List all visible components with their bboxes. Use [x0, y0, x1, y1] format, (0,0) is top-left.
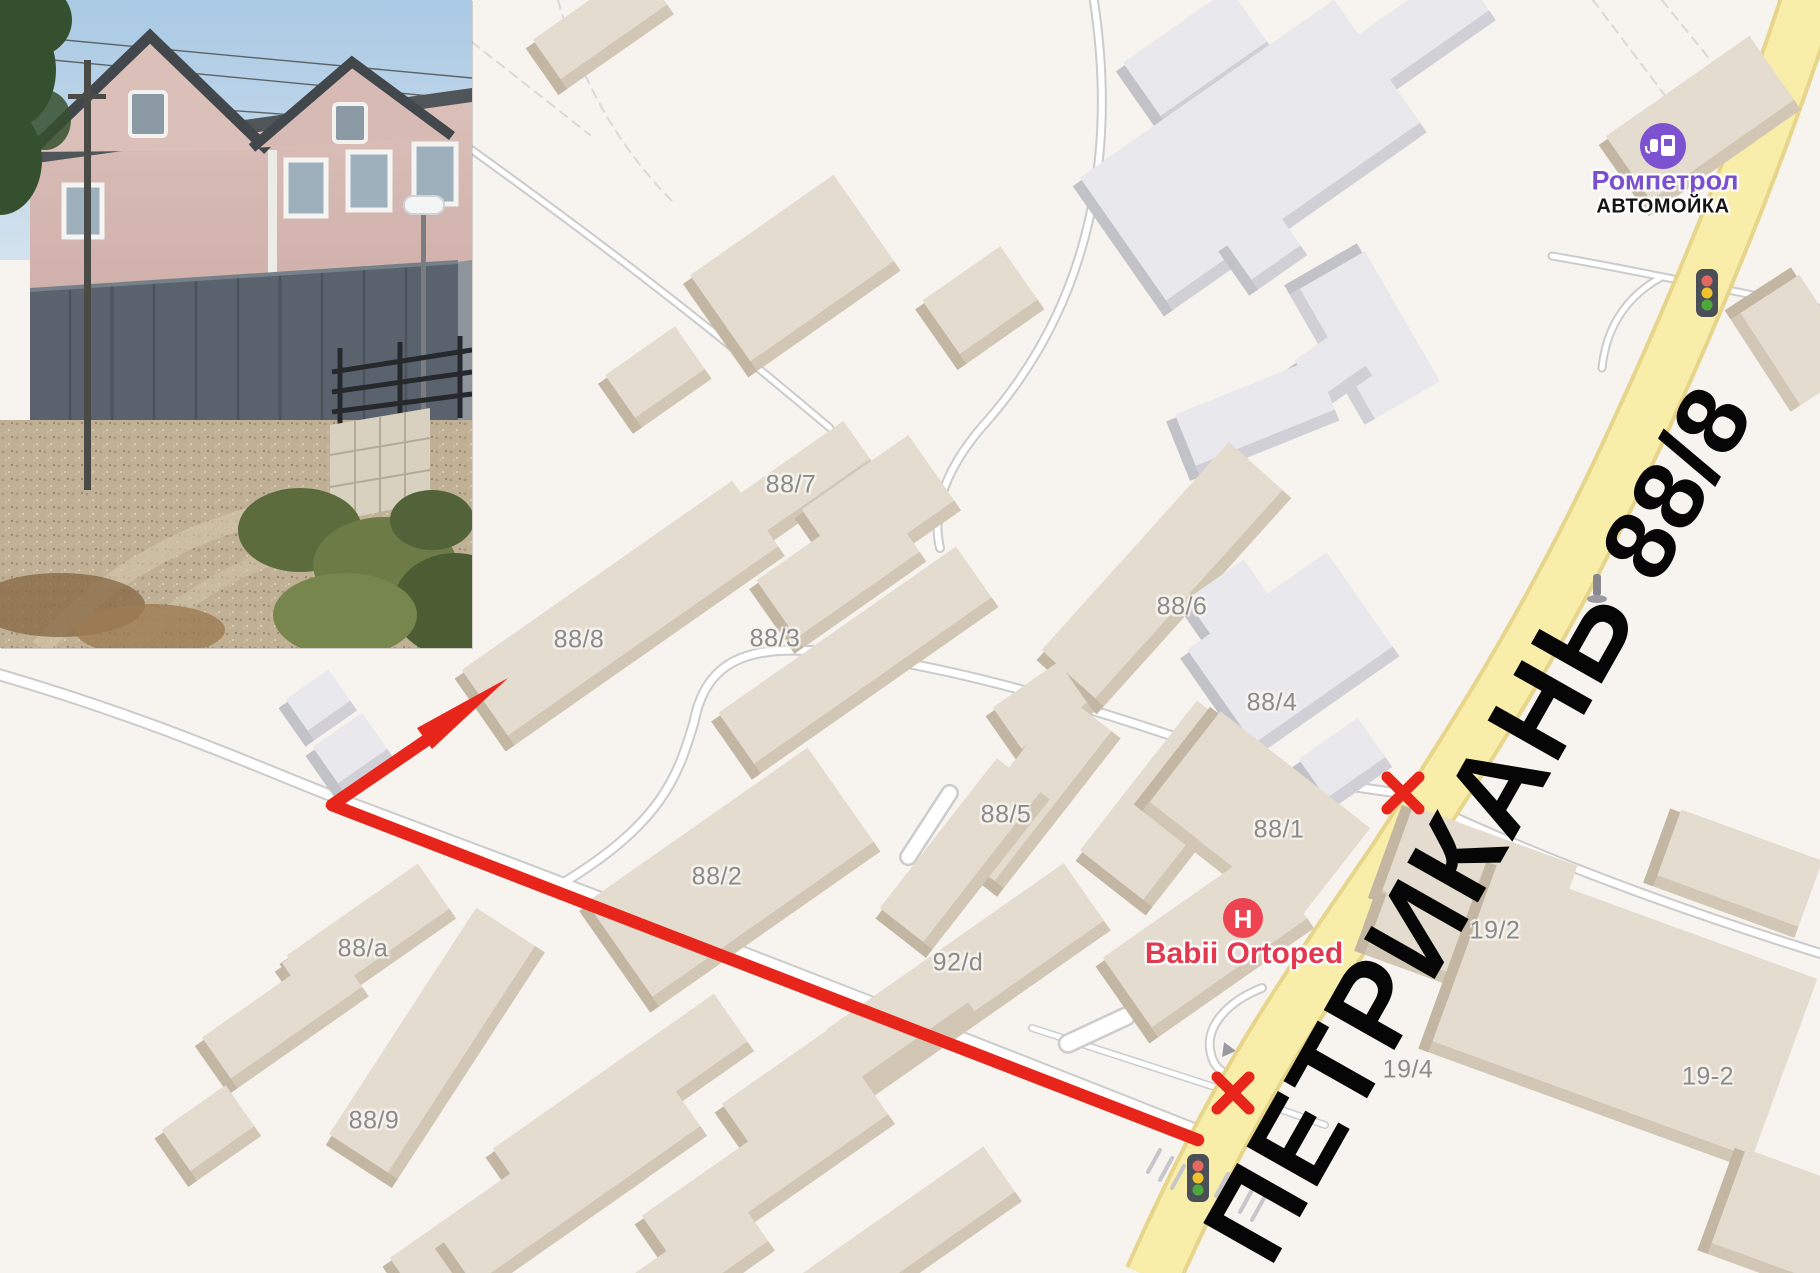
poi-clinic-label[interactable]: Babii Ortoped — [1145, 937, 1343, 971]
photo-graphic — [0, 0, 472, 648]
svg-text:H: H — [1234, 904, 1253, 934]
building-label: 88/1 — [1254, 816, 1305, 845]
building — [596, 326, 711, 433]
building — [681, 175, 900, 378]
building-label: 88/7 — [766, 471, 817, 500]
building — [153, 1085, 261, 1187]
building-label: 88/2 — [692, 863, 743, 892]
building — [524, 0, 674, 95]
building-label: 88/6 — [1157, 593, 1208, 622]
traffic-light-icon — [1696, 269, 1718, 317]
building — [1165, 358, 1339, 480]
building-label: 88/8 — [554, 626, 605, 655]
fuel-station-icon[interactable] — [1640, 123, 1686, 169]
building-label: 88/3 — [750, 625, 801, 654]
building — [1725, 266, 1820, 412]
poi-carwash-label[interactable]: АВТОМОЙКА — [1596, 196, 1729, 219]
building — [1697, 1145, 1820, 1273]
building-label: 88/4 — [1247, 689, 1298, 718]
building-label: 92/d — [933, 949, 984, 978]
photo-inset — [0, 0, 472, 648]
hospital-icon[interactable]: H — [1223, 898, 1263, 938]
building-label: 19-2 — [1682, 1063, 1734, 1092]
building-label: 88/9 — [349, 1107, 400, 1136]
poi-fuel-station-label[interactable]: Ромпетрол — [1591, 166, 1738, 197]
building-label: 88/a — [338, 935, 389, 964]
map-canvas[interactable]: H 88/7 88/8 88/3 88/6 88/4 88/5 88/1 88/… — [0, 0, 1820, 1273]
building-label: 88/5 — [981, 801, 1032, 830]
building — [1643, 806, 1820, 938]
building — [913, 246, 1044, 370]
